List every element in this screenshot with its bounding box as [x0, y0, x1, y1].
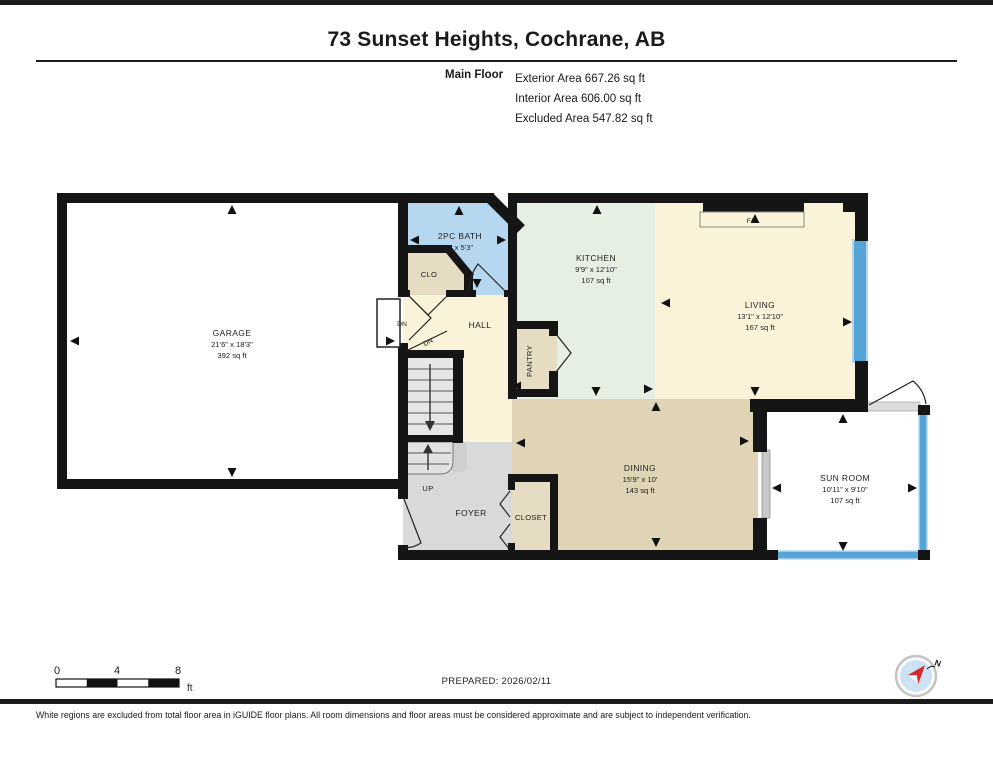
- dining-label: DINING: [624, 463, 656, 473]
- compass-north-label: N: [933, 657, 942, 668]
- dining-dims: 15'9" x 10': [623, 475, 658, 484]
- dining-area: 143 sq ft: [625, 486, 655, 495]
- living-dims: 13'1" x 12'10": [737, 312, 783, 321]
- sunroom-slider: [762, 450, 770, 518]
- sunroom-area: 107 sq ft: [830, 496, 860, 505]
- bath-dims: 7' x 5'3": [447, 243, 474, 252]
- kitchen-dims: 9'9" x 12'10": [575, 265, 617, 274]
- floorplan-page: 73 Sunset Heights, Cochrane, AB Main Flo…: [0, 0, 993, 768]
- room-sunroom-fill: [768, 410, 925, 557]
- up-label: UP: [422, 484, 433, 493]
- sunroom-dims: 10'11" x 9'10": [822, 485, 868, 494]
- floor-plan: GARAGE 21'6" x 18'3" 392 sq ft 2PC BATH …: [0, 0, 993, 768]
- bath-label: 2PC BATH: [438, 231, 482, 241]
- sunroom-door-sill: [866, 402, 920, 411]
- closet-label: CLOSET: [515, 513, 547, 522]
- room-fills: [62, 198, 925, 557]
- living-label: LIVING: [745, 300, 775, 310]
- hall-label: HALL: [469, 320, 492, 330]
- pantry-label: PANTRY: [525, 345, 534, 377]
- bottom-border: [0, 699, 993, 704]
- disclaimer-text: White regions are excluded from total fl…: [36, 710, 751, 720]
- garage-label: GARAGE: [213, 328, 252, 338]
- kitchen-label: KITCHEN: [576, 253, 616, 263]
- dn-garage-label: DN: [397, 321, 407, 328]
- living-window: [853, 240, 867, 362]
- foyer-label: FOYER: [455, 508, 486, 518]
- sunroom-label: SUN ROOM: [820, 473, 870, 483]
- sunroom-door: [869, 381, 926, 405]
- fireplace-label: F/P: [747, 218, 758, 225]
- sunroom-window-east: [919, 410, 927, 554]
- clo-label: CLO: [421, 270, 438, 279]
- living-area: 167 sq ft: [745, 323, 775, 332]
- prepared-date: PREPARED: 2026/02/11: [0, 676, 993, 687]
- kitchen-area: 107 sq ft: [581, 276, 611, 285]
- sunroom-window-south: [768, 551, 921, 559]
- garage-area: 392 sq ft: [217, 351, 247, 360]
- garage-dims: 21'6" x 18'3": [211, 340, 253, 349]
